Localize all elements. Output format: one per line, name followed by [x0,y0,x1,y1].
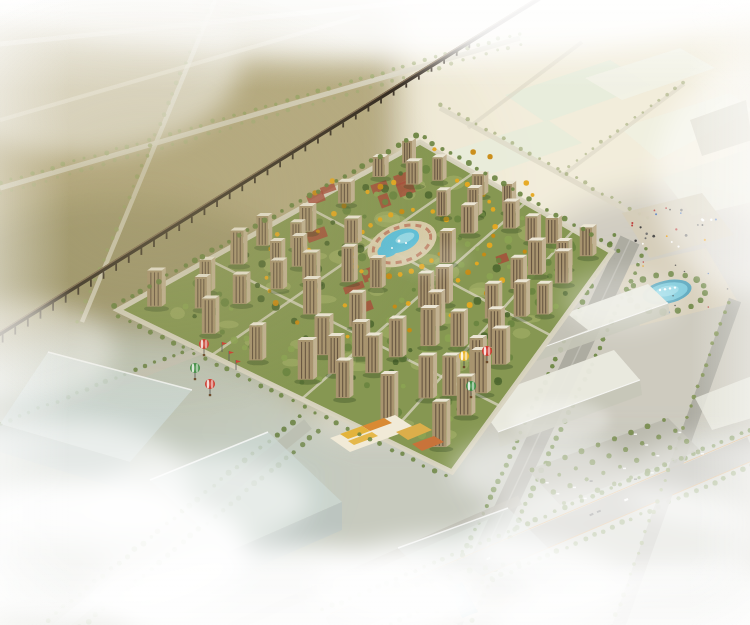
tower [378,371,402,424]
aerial-rendering [0,0,750,625]
tower [415,353,440,404]
screenshot-root [0,0,750,625]
